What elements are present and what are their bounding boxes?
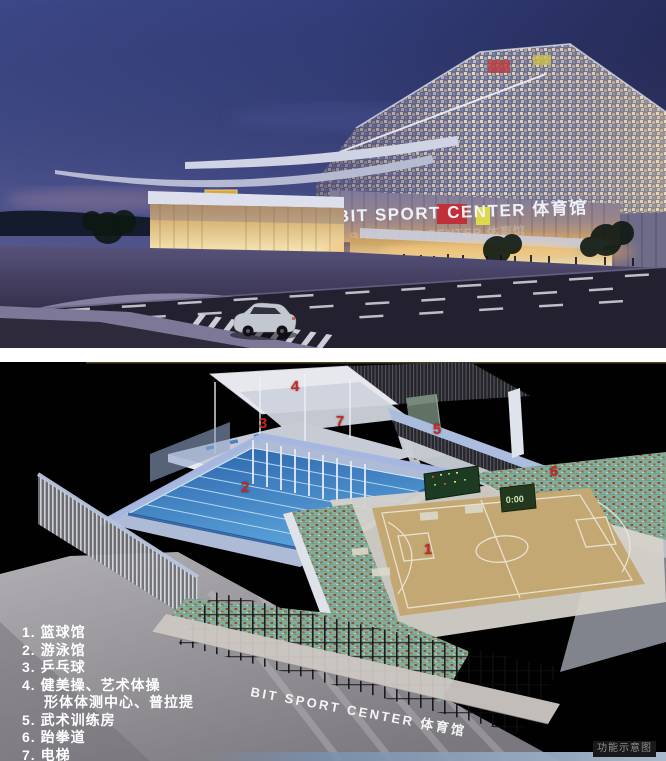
- marker-elevator: 7: [336, 414, 344, 429]
- interior-cutaway-render: 0:00 BIT SPORT CENTER 体育馆 1 2 3 4 5 6 7: [0, 362, 666, 761]
- legend-item-aerobics-line2: 形体体测中心、普拉提: [22, 694, 194, 712]
- caption-function-diagram: 功能示意图: [593, 741, 656, 757]
- exterior-night-render: BIT SPORT CENTER 体育馆 BIT SPORT CENTER 体育…: [0, 0, 666, 348]
- legend-item-taekwondo: 6. 跆拳道: [22, 729, 194, 747]
- legend-item-basketball: 1. 篮球馆: [22, 624, 194, 642]
- left-wing-building: [148, 190, 344, 252]
- legend-item-table-tennis: 3. 乒乓球: [22, 659, 194, 677]
- marker-swimming: 2: [241, 480, 249, 495]
- legend-item-swimming: 2. 游泳馆: [22, 642, 194, 660]
- legend: 1. 篮球馆 2. 游泳馆 3. 乒乓球 4. 健美操、艺术体操 形体体测中心、…: [22, 624, 194, 761]
- exterior-render-canvas: BIT SPORT CENTER 体育馆 BIT SPORT CENTER 体育…: [0, 0, 666, 348]
- marker-aerobics: 4: [291, 379, 299, 394]
- top-hairline: [86, 362, 666, 364]
- marker-table-tennis: 3: [259, 416, 267, 431]
- legend-item-elevator: 7. 电梯: [22, 747, 194, 761]
- marker-basketball: 1: [424, 542, 432, 557]
- marker-taekwondo: 6: [550, 464, 558, 479]
- legend-item-aerobics: 4. 健美操、艺术体操: [22, 677, 194, 695]
- legend-item-martial-arts: 5. 武术训练房: [22, 712, 194, 730]
- page: BIT SPORT CENTER 体育馆 BIT SPORT CENTER 体育…: [0, 0, 666, 761]
- marker-martial-arts: 5: [433, 422, 441, 437]
- scoreboard-time: 0:00: [505, 494, 524, 505]
